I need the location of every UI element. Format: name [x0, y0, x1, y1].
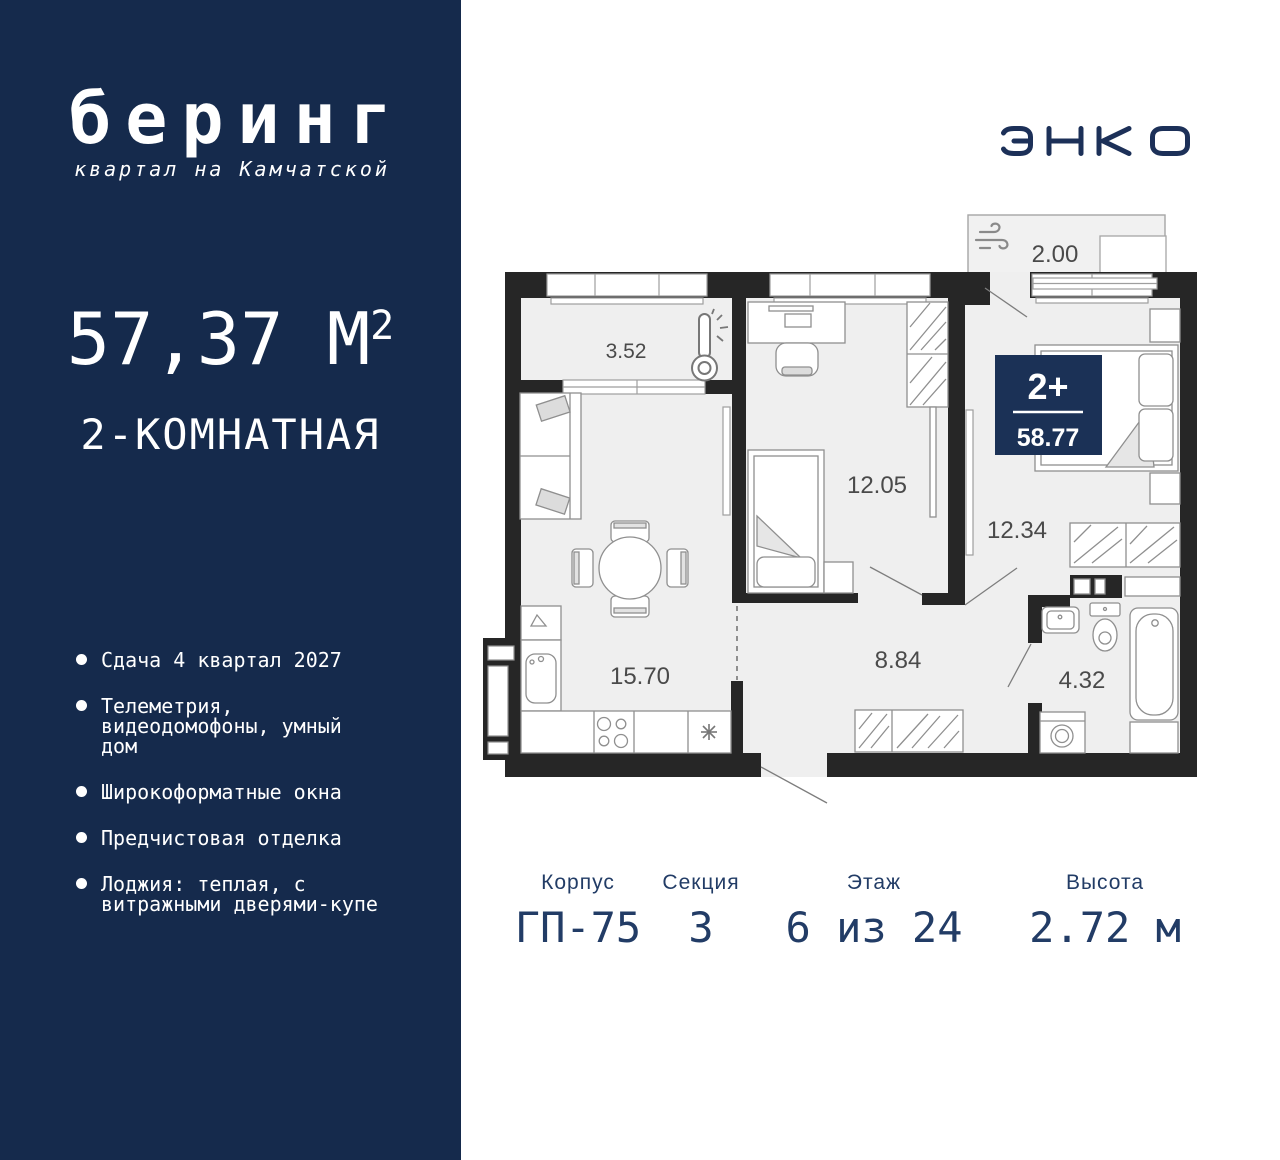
bullet-icon: [76, 654, 87, 665]
info-section: Секция 3: [662, 872, 739, 949]
info-value: 2.72 м: [1029, 907, 1181, 949]
room-label-loggia-large: 2.00: [1032, 241, 1079, 268]
sofa: [520, 393, 581, 519]
pillow: [1139, 409, 1173, 461]
nightstand: [824, 562, 853, 593]
room-label-kitchen-living: 15.70: [610, 663, 670, 690]
bullet-icon: [76, 832, 87, 843]
info-building: Корпус ГП-75: [515, 872, 641, 949]
info-label: Корпус: [515, 872, 641, 893]
info-label: Секция: [662, 872, 739, 893]
project-logo: беринг: [0, 84, 461, 154]
info-value: 3: [662, 907, 739, 949]
badge-area: 58.77: [1017, 424, 1080, 452]
washing-machine: [1040, 712, 1085, 753]
area-superscript: 2: [370, 303, 394, 349]
letter-o: [1153, 129, 1188, 154]
info-value: 6 из 24: [785, 907, 962, 949]
apartment-card: беринг квартал на Камчатской 57,37 М2 2-…: [0, 0, 1280, 1160]
info-value: ГП-75: [515, 907, 641, 949]
room-label-master-bedroom: 12.34: [987, 517, 1047, 544]
feature-item: Телеметрия, видеодомофоны, умный дом: [76, 696, 381, 756]
feature-list: Сдача 4 квартал 2027 Телеметрия, видеодо…: [76, 650, 381, 940]
room-label-hallway: 8.84: [875, 647, 922, 674]
wardrobe-master: [1070, 523, 1180, 567]
shelf-row: [1074, 577, 1180, 596]
pillow: [757, 557, 815, 587]
loggia-door-opening: [990, 272, 1030, 298]
glazed-panel: [966, 410, 973, 555]
letter-e: [1004, 129, 1031, 154]
info-floor: Этаж 6 из 24: [785, 872, 962, 949]
nightstand: [1150, 473, 1180, 504]
window-bedroom: [770, 274, 930, 296]
toilet: [1090, 603, 1120, 651]
feature-item: Широкоформатные окна: [76, 782, 381, 802]
developer-logo-enko: ЭНКО: [997, 126, 1197, 156]
wardrobe-hallway: [855, 710, 963, 752]
feature-item: Лоджия: теплая, с витражными дверями-куп…: [76, 874, 381, 914]
project-logo-subtitle: квартал на Камчатской: [0, 159, 461, 179]
room-label-bedroom: 12.05: [847, 472, 907, 499]
glazed-panel: [723, 407, 730, 515]
window-loggia-small: [547, 274, 707, 296]
badge-rooms: 2+: [1027, 366, 1068, 407]
letter-n: [1049, 129, 1081, 154]
pillow: [1139, 354, 1173, 406]
info-height: Высота 2.72 м: [1029, 872, 1181, 949]
bullet-icon: [76, 700, 87, 711]
bathtub: [1130, 608, 1178, 753]
area-badge: 2+ 58.77: [995, 355, 1102, 455]
bathroom-sink: [1042, 607, 1079, 633]
info-label: Высота: [1029, 872, 1181, 893]
feature-item: Предчистовая отделка: [76, 828, 381, 848]
room-label-loggia-small: 3.52: [606, 340, 647, 363]
apartment-type: 2-КОМНАТНАЯ: [0, 414, 461, 456]
nightstand: [1150, 309, 1180, 342]
info-label: Этаж: [785, 872, 962, 893]
feature-item: Сдача 4 квартал 2027: [76, 650, 381, 670]
bullet-icon: [76, 786, 87, 797]
room-label-bathroom: 4.32: [1059, 667, 1106, 694]
sink-symbol: [701, 724, 717, 740]
loggia-cabinet: [1100, 236, 1166, 274]
floor-plan: 2+ 58.77 3.52 12.05 12.34 2.00 15.70 8.8…: [480, 210, 1200, 810]
area-value: 57,37 М: [67, 297, 370, 381]
bullet-icon: [76, 878, 87, 889]
letter-k: [1099, 129, 1129, 154]
sidebar: беринг квартал на Камчатской 57,37 М2 2-…: [0, 0, 461, 1160]
apartment-area: 57,37 М2: [0, 303, 461, 375]
